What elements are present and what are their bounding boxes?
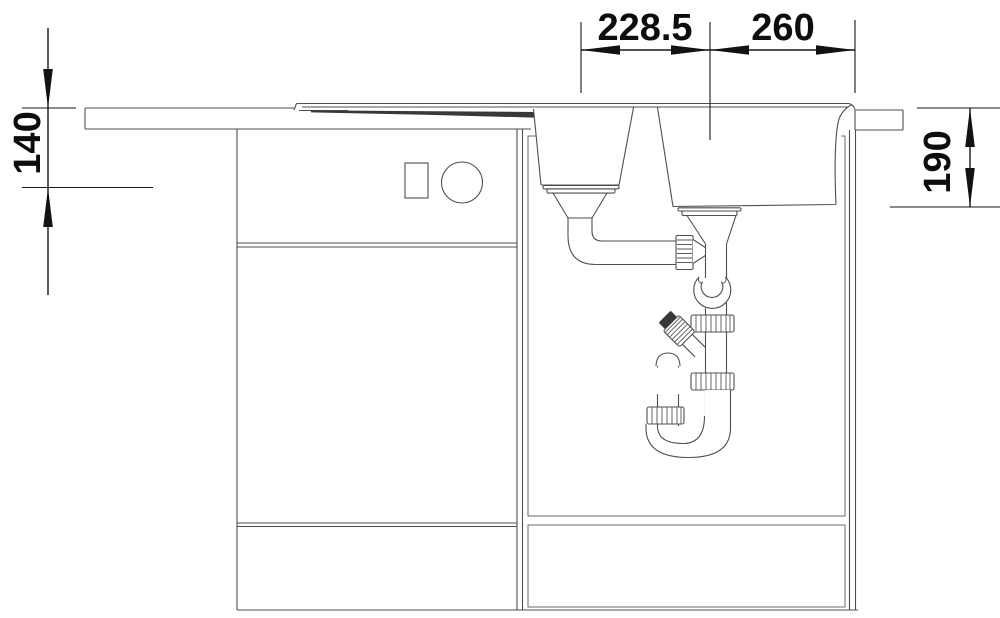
dim-label-190: 190	[917, 130, 959, 193]
cabinet-right-wall	[850, 130, 856, 610]
base-cabinet-left	[237, 130, 517, 611]
trap-collar-fill	[647, 407, 684, 424]
drainboard-slope	[311, 110, 534, 117]
sink-elevation-svg: 228.5 260 140 190	[0, 0, 1000, 618]
socket-rect-symbol	[405, 163, 428, 198]
tee-nut	[676, 236, 693, 270]
countertop-left-slab	[85, 108, 531, 129]
dim-label-260: 260	[751, 7, 814, 49]
main-strainer-flange-fill	[682, 211, 737, 216]
cabinet-bottom-panel	[528, 525, 845, 607]
arrow-140-top	[43, 69, 53, 108]
arrow-260-right	[816, 45, 855, 55]
cabinet-divider-wall	[517, 130, 523, 611]
small-strainer-flange-fill	[547, 189, 615, 193]
dim-label-140: 140	[7, 111, 49, 174]
arrow-140-bottom	[43, 188, 53, 227]
drain-assembly	[543, 186, 1000, 618]
drawer-divider-lower	[237, 523, 517, 527]
tailpipe-nut-lower	[691, 373, 734, 390]
technical-drawing-canvas: 228.5 260 140 190	[0, 0, 1000, 618]
arrow-190-bottom	[965, 168, 975, 207]
socket-circle-symbol	[442, 162, 483, 203]
dimension-annotations: 228.5 260 140 190	[7, 7, 1000, 295]
tailpipe-nut-upper	[691, 315, 734, 332]
arrow-260-left	[710, 45, 749, 55]
dim-label-228-5: 228.5	[597, 7, 692, 49]
swivel-outlet-collar	[693, 272, 731, 310]
arrow-190-top	[965, 108, 975, 147]
scalloped-union-nut	[645, 368, 690, 395]
countertop-right-slab	[855, 110, 903, 130]
drawer-divider-upper	[237, 243, 517, 247]
